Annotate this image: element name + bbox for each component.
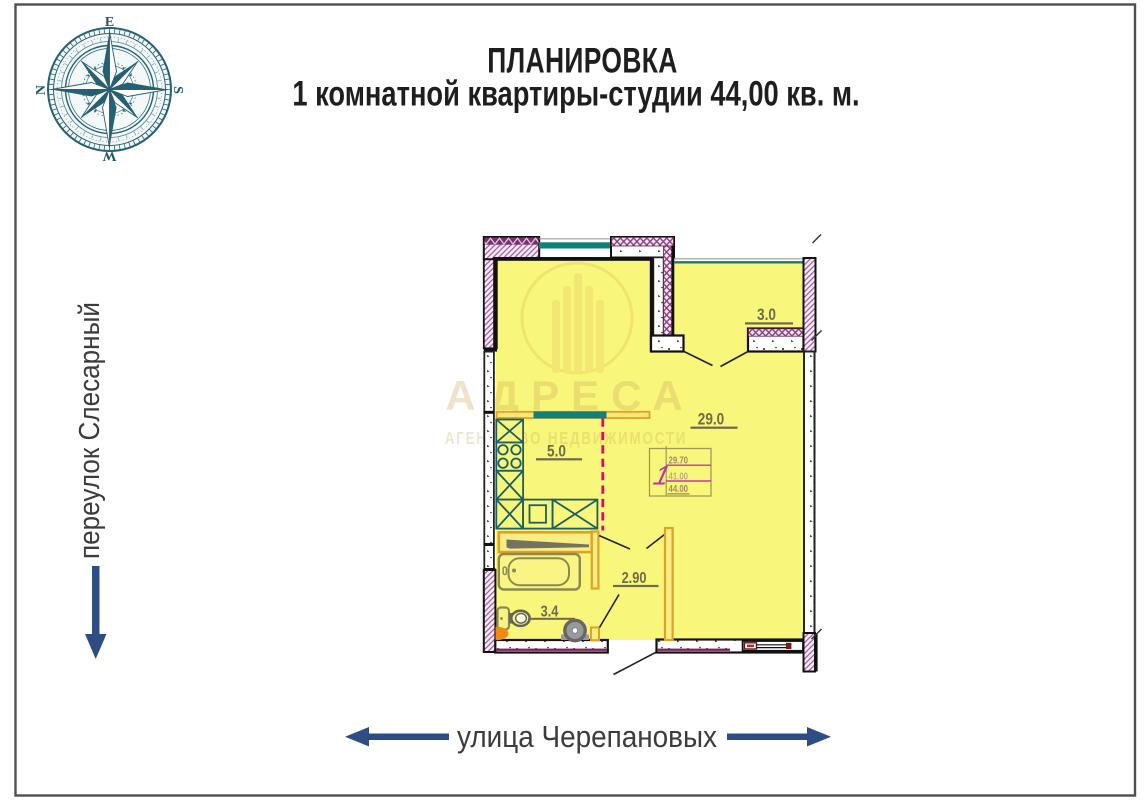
svg-text:переулок Слесарный: переулок Слесарный <box>73 302 106 559</box>
svg-text:улица Черепановых: улица Черепановых <box>457 720 717 755</box>
svg-text:1 комнатной квартиры-студии 44: 1 комнатной квартиры-студии 44,00 кв. м. <box>292 74 859 113</box>
svg-text:29.0: 29.0 <box>698 410 724 429</box>
svg-text:E: E <box>105 15 114 30</box>
svg-text:АГЕНТСТВО НЕДВИЖИМОСТИ: АГЕНТСТВО НЕДВИЖИМОСТИ <box>445 429 687 448</box>
svg-text:2.90: 2.90 <box>622 570 647 588</box>
svg-text:44.00: 44.00 <box>669 483 689 494</box>
svg-text:41.00: 41.00 <box>669 471 689 482</box>
svg-text:3.0: 3.0 <box>757 306 776 325</box>
svg-text:S: S <box>170 86 185 94</box>
svg-text:W: W <box>103 148 117 163</box>
svg-text:5.0: 5.0 <box>547 442 566 461</box>
svg-text:N: N <box>34 85 49 95</box>
